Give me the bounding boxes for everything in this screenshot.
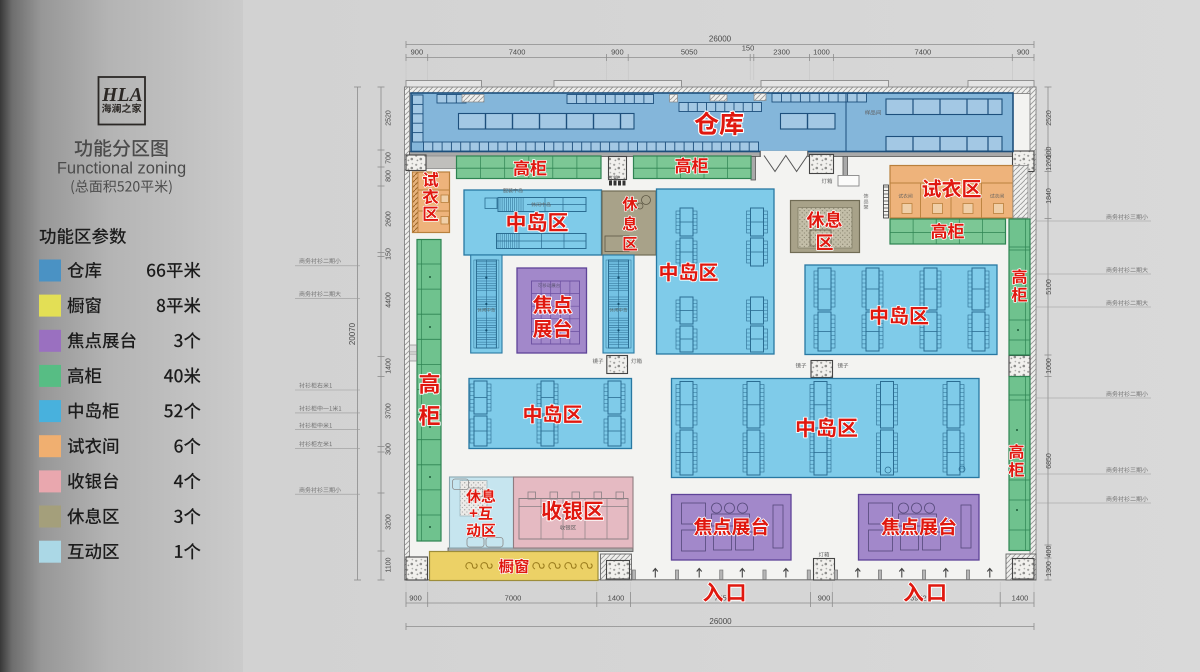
- svg-text:HLA: HLA: [101, 85, 143, 106]
- svg-text:5050: 5050: [681, 48, 698, 57]
- svg-text:900: 900: [611, 48, 624, 57]
- svg-text:900: 900: [409, 594, 422, 603]
- svg-text:1260: 1260: [1046, 155, 1053, 171]
- svg-text:800: 800: [386, 170, 393, 182]
- svg-text:1300: 1300: [1046, 561, 1053, 577]
- svg-text:900: 900: [818, 594, 831, 603]
- svg-text:3700: 3700: [386, 403, 393, 419]
- svg-text:7400: 7400: [509, 48, 526, 57]
- svg-text:7400: 7400: [915, 48, 932, 57]
- svg-text:6850: 6850: [1046, 453, 1053, 469]
- svg-text:400: 400: [1046, 546, 1053, 558]
- svg-text:2600: 2600: [386, 211, 393, 227]
- svg-text:150: 150: [386, 248, 393, 260]
- svg-text:1000: 1000: [813, 48, 830, 57]
- svg-text:2300: 2300: [773, 48, 790, 57]
- svg-text:900: 900: [411, 48, 424, 57]
- svg-text:1400: 1400: [386, 358, 393, 374]
- svg-text:1400: 1400: [608, 594, 625, 603]
- svg-text:1000: 1000: [1046, 358, 1053, 374]
- svg-text:1840: 1840: [1046, 188, 1053, 204]
- svg-text:2520: 2520: [386, 110, 393, 126]
- svg-text:Functional zoning: Functional zoning: [57, 160, 186, 178]
- svg-text:4400: 4400: [386, 292, 393, 308]
- svg-text:26000: 26000: [709, 617, 732, 626]
- svg-text:3200: 3200: [386, 514, 393, 530]
- svg-text:700: 700: [386, 152, 393, 164]
- svg-text:5100: 5100: [1046, 279, 1053, 295]
- svg-text:20070: 20070: [348, 322, 357, 345]
- svg-text:900: 900: [1017, 48, 1030, 57]
- svg-text:26000: 26000: [709, 35, 732, 44]
- svg-text:7000: 7000: [505, 594, 522, 603]
- svg-text:2520: 2520: [1046, 110, 1053, 126]
- svg-text:300: 300: [386, 443, 393, 455]
- svg-text:1400: 1400: [1012, 594, 1029, 603]
- svg-text:150: 150: [742, 44, 755, 53]
- svg-text:1100: 1100: [386, 557, 393, 572]
